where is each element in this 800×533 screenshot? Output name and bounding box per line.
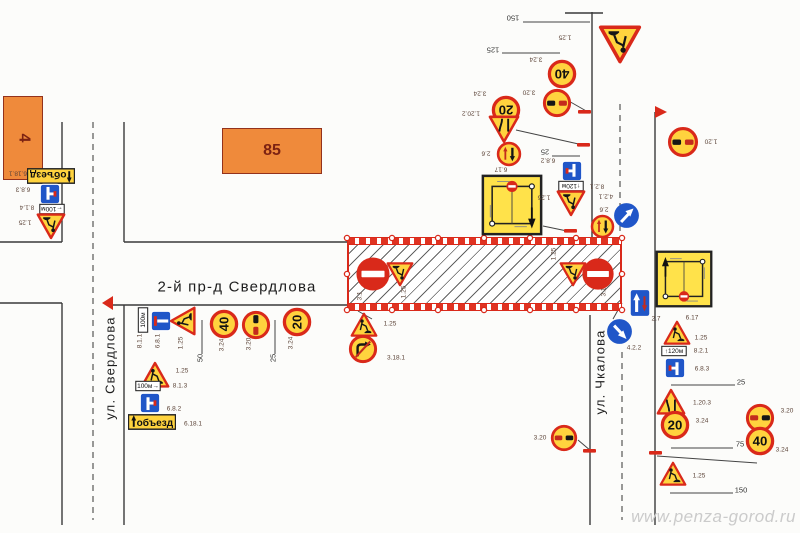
sign-4.2.1 [613, 202, 640, 229]
sign-3.1-icon [581, 257, 615, 291]
barrier-post-dot [344, 235, 349, 240]
barrier-post-dot [481, 307, 486, 312]
sign-code-label: 1.20 [705, 138, 718, 145]
sign-code-label: 8.2.1 [694, 348, 708, 355]
barrier-post-dot [573, 235, 578, 240]
sign-code-label: 3.20 [534, 435, 547, 442]
barrier-post-dot [435, 235, 440, 240]
sign-code-label: 6.8.3 [695, 366, 709, 373]
svg-text:40: 40 [753, 434, 768, 449]
red-tick-marker [564, 229, 577, 233]
sign-1.25-icon [659, 460, 687, 488]
svg-text:40: 40 [555, 67, 570, 82]
sign-3.18.1 [348, 334, 378, 364]
svg-text:20: 20 [290, 315, 305, 330]
sign-1.25 [598, 22, 642, 66]
street-name: 2-й пр-д Свердлова [158, 279, 317, 296]
sign-3.20-icon [542, 88, 572, 118]
sign-code-label: 2.6 [599, 206, 608, 213]
sign-code-label: 3.24 [530, 56, 543, 63]
red-tick-marker [649, 451, 662, 455]
sign-4.2.2 [606, 318, 633, 345]
sign-code-label: 1.25 [538, 194, 551, 201]
distance-label: 25 [737, 378, 745, 387]
sign-code-label: 2.6 [481, 150, 490, 157]
sign-6.17 [655, 250, 713, 308]
sign-code-label: 1.25 [401, 286, 408, 299]
sign-3.24-icon: 20 [282, 307, 312, 337]
sign-code-label: 6.8.1 [155, 334, 162, 348]
distance-label: 50 [196, 354, 205, 362]
sign-3.24: 40 [547, 59, 577, 89]
red-flag-marker [655, 106, 667, 118]
sign-2.6 [496, 141, 522, 167]
barrier-post-dot [344, 307, 349, 312]
barrier-post-dot [619, 235, 624, 240]
barrier-post-dot [389, 235, 394, 240]
sign-code-label: 3.20 [523, 89, 536, 96]
sign-3.20-icon [550, 424, 578, 452]
sign-4.2.2-icon [606, 318, 633, 345]
red-tick-marker [578, 110, 591, 114]
svg-text:↑120м: ↑120м [665, 348, 684, 355]
sign-code-label: 4.2.2 [627, 345, 641, 352]
svg-text:объезд: объезд [29, 169, 66, 181]
sign-2.6-icon [590, 214, 615, 239]
sign-3.20 [542, 88, 572, 118]
sign-code-label: 1.20.3 [693, 400, 711, 407]
sign-6.17-icon [481, 174, 543, 236]
sign-code-label: 1.25 [178, 337, 185, 350]
sign-code-label: 3.20 [246, 338, 253, 351]
sign-code-label: 1.25 [559, 34, 572, 41]
sign-3.20 [241, 310, 271, 340]
sign-code-label: 8.1.1 [137, 334, 144, 348]
sign-1.25-icon [168, 306, 198, 336]
sign-2.6 [590, 214, 615, 239]
sign-code-label: 3.24 [288, 337, 295, 350]
sign-3.24-icon: 20 [660, 410, 690, 440]
sign-code-label: 1.25 [693, 473, 706, 480]
sign-code-label: 6.18.1 [9, 170, 27, 177]
barrier-post-dot [527, 307, 532, 312]
sign-6.8.3 [664, 357, 686, 379]
sign-1.25-icon [556, 188, 586, 218]
svg-text:20: 20 [668, 418, 683, 433]
sign-code-label: 3.24 [776, 447, 789, 454]
sign-code-label: 3.24 [696, 418, 709, 425]
distance-label: 125 [487, 46, 500, 55]
distance-label: 150 [735, 486, 748, 495]
distance-label: 25 [541, 148, 549, 157]
sign-code-label: 2.7 [651, 316, 660, 323]
sign-code-label: 8.1.4 [20, 204, 34, 211]
sign-code-label: 3.24 [474, 90, 487, 97]
sign-code-label: 3.1 [601, 287, 608, 296]
sign-3.24-icon: 40 [209, 309, 239, 339]
traffic-scheme-page: www.penza-gorod.ru 485 объезд6.18.1 6.8.… [0, 0, 800, 533]
sign-code-label: 3.18.1 [387, 355, 405, 362]
sign-3.1 [581, 257, 615, 291]
sign-2.6-icon [496, 141, 522, 167]
sign-code-label: 6.17 [686, 315, 699, 322]
sign-1.25 [659, 460, 687, 488]
red-tick-marker [583, 449, 596, 453]
sign-code-label: 3.1 [357, 291, 364, 300]
barrier-post-dot [481, 235, 486, 240]
sign-code-label: 6.8.2 [541, 157, 555, 164]
sign-code-label: 1.25 [551, 248, 558, 261]
sign-1.25-icon [36, 211, 66, 241]
svg-text:100м→: 100м→ [137, 383, 159, 390]
sign-1.25-icon [598, 22, 642, 66]
barrier-post-dot [389, 307, 394, 312]
sign-code-label: 1.20.2 [462, 110, 480, 117]
sign-code-label: 1.25 [384, 321, 397, 328]
sign-3.24: 40 [209, 309, 239, 339]
sign-3.18.1-icon [348, 334, 378, 364]
sign-3.20 [550, 424, 578, 452]
sign-4.2.1-icon [613, 202, 640, 229]
barrier-post-dot [435, 307, 440, 312]
sign-1.20-icon [667, 126, 699, 158]
sign-code-label: 6.8.2 [167, 406, 181, 413]
red-flag-marker [102, 296, 113, 310]
svg-text:объезд: объезд [137, 417, 174, 429]
sign-6.8.3-icon [664, 357, 686, 379]
sign-code-label: 3.20 [781, 408, 794, 415]
sign-1.25-icon [386, 260, 414, 288]
barrier-post-dot [619, 307, 624, 312]
barrier-post-dot [344, 271, 349, 276]
sign-1.25 [168, 306, 198, 336]
sign-1.25 [386, 260, 414, 288]
sign-6.17-icon [655, 250, 713, 308]
street-name: ул. Чкалова [593, 329, 608, 414]
sign-3.20-icon [241, 310, 271, 340]
svg-text:100м: 100м [140, 312, 147, 328]
street-name: ул. Свердлова [103, 316, 118, 419]
sign-code-label: 6.8.3 [16, 186, 30, 193]
sign-code-label: 4.2.1 [599, 193, 613, 200]
watermark: www.penza-gorod.ru [631, 507, 796, 527]
red-tick-marker [577, 143, 590, 147]
barrier-post-dot [619, 271, 624, 276]
sign-1.25 [556, 188, 586, 218]
sign-code-label: 6.18.1 [184, 421, 202, 428]
sign-1.20 [667, 126, 699, 158]
sign-code-label: 1.25 [19, 219, 32, 226]
sign-code-label: 1.25 [695, 335, 708, 342]
svg-text:40: 40 [217, 317, 232, 332]
sign-code-label: 8.2.1 [590, 183, 604, 190]
sign-2.7 [626, 289, 654, 317]
distance-label: 25 [269, 354, 278, 362]
sign-code-label: 3.24 [219, 339, 226, 352]
barrier-post-dot [527, 235, 532, 240]
sign-2.7-icon [626, 289, 654, 317]
sign-6.17 [481, 174, 543, 236]
sign-3.24: 20 [282, 307, 312, 337]
sign-1.25 [36, 211, 66, 241]
sign-code-label: 6.17 [495, 166, 508, 173]
distance-label: 150 [507, 14, 520, 23]
sign-code-label: 8.1.3 [173, 383, 187, 390]
distance-label: 75 [736, 440, 744, 449]
sign-code-label: 1.25 [176, 368, 189, 375]
sign-3.24: 40 [745, 426, 775, 456]
sign-3.24-icon: 40 [547, 59, 577, 89]
sign-3.24: 20 [660, 410, 690, 440]
sign-3.24-icon: 40 [745, 426, 775, 456]
barrier-post-dot [573, 307, 578, 312]
